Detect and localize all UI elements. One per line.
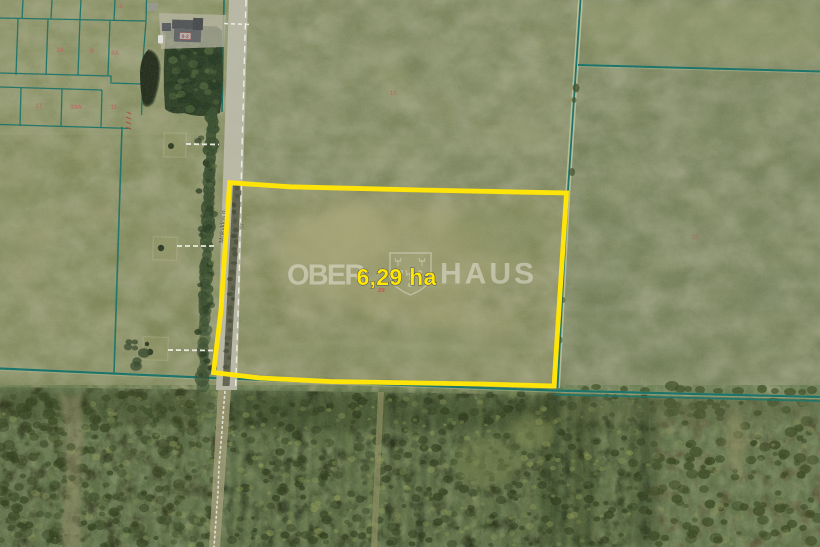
svg-text:29: 29 [378,288,385,294]
svg-text:6,29 ha: 6,29 ha [357,264,437,290]
svg-text:OBER: OBER [287,260,365,292]
svg-text:HAUS: HAUS [440,258,537,291]
